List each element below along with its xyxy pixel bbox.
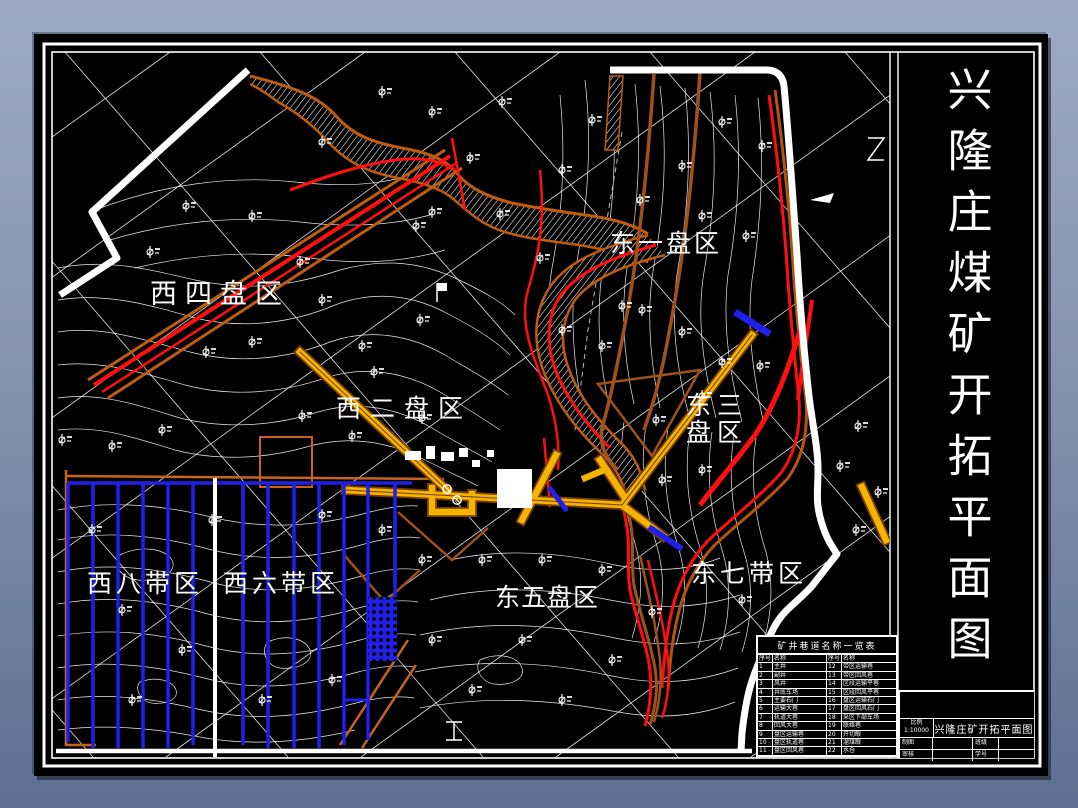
legend-row: 2副井 13带区回风巷 [758,672,896,680]
label-east5-district: 东五盘区 [495,583,599,612]
page-background: 西四盘区 东一盘区 西二盘区 东三 盘区 西八带区 西六带区 东五盘区 东七带区… [0,0,1078,808]
label-east3-district-line1: 东三 [686,391,748,420]
label-west8-district: 西八带区 [87,569,203,598]
leader-arrow [810,193,834,203]
title-panel: 兴隆庄煤矿开拓平面图 [900,54,1032,690]
cad-drawing-sheet: 西四盘区 东一盘区 西二盘区 东三 盘区 西八带区 西六带区 东五盘区 东七带区… [34,34,1048,776]
legend-row: 8回风大巷 19联络巷 [758,722,896,730]
borehole-symbols [59,86,888,706]
legend-row: 6运输大巷 17盘区回风石门 [758,705,896,713]
legend-row: 5主要石门 16盘区运输石门 [758,697,896,705]
label-east1-district: 东一盘区 [610,229,722,258]
title-block-row: 制图 班级 [900,738,1034,749]
title-block: 比例 1:10000 兴隆庄矿开拓平面图 制图 班级 审核 学号 [898,690,1034,758]
gong-mark [446,722,462,740]
legend-row: 4井底车场 15区段回风平巷 [758,689,896,697]
legend-title: 矿井巷道名称一览表 [758,637,896,655]
scale-cell: 比例 1:10000 [900,719,934,737]
legend-table: 矿井巷道名称一览表 序号名称 序号名称 1主井 12带区运输巷 2副井 13带区… [756,635,898,757]
legend-row: 3风井 14区段运输平巷 [758,680,896,688]
legend-row: 1主井 12带区运输巷 [758,663,896,671]
title-block-blank [900,692,1034,719]
legend-row: 11盘区回风巷 22水仓 [758,747,896,755]
label-west4-district: 西四盘区 [150,279,290,310]
label-east7-district: 东七带区 [691,559,807,588]
legend-row: 10盘区轨道巷 21溜煤眼 [758,739,896,747]
legend-row: 9盘区运输巷 20开切眼 [758,731,896,739]
title-block-row: 审核 学号 [900,749,1034,761]
label-east3-district-line2: 盘区 [686,418,748,447]
title-block-drawing-title: 兴隆庄矿开拓平面图 [934,719,1034,737]
flag-symbol [437,283,447,302]
legend-header-row: 序号名称 序号名称 [758,655,896,663]
label-west6-district: 西六带区 [223,569,339,598]
drawing-title-vertical: 兴隆庄煤矿开拓平面图 [944,54,989,690]
grid-mark [868,138,884,160]
legend-row: 7轨道大巷 18采区下部车场 [758,714,896,722]
label-west2-district: 西二盘区 [336,394,472,423]
